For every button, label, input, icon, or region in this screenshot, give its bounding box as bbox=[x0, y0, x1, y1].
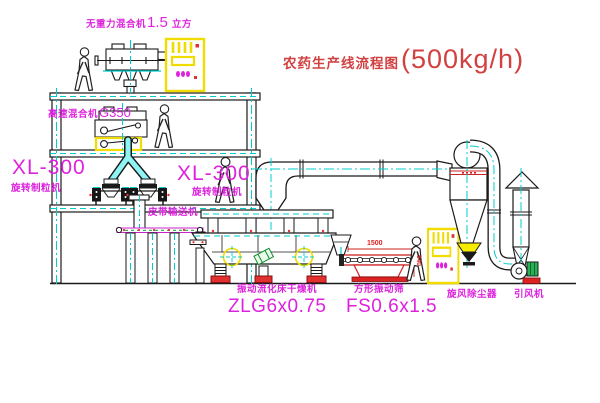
diagram-title: 农药生产线流程图 (500kg/h) bbox=[283, 44, 524, 75]
label-highspeed-mixer-value: G350 bbox=[99, 106, 131, 119]
person-figure-floor2 bbox=[155, 105, 173, 148]
label-highspeed-mixer: 高速混合机 G350 bbox=[48, 106, 131, 120]
label-granulator-left-model: XL-300 bbox=[12, 157, 86, 178]
control-cabinet-ground bbox=[428, 229, 458, 283]
pesticide-production-line-diagram: 农药生产线流程图 (500kg/h) 无重力混合机 1.5 立方 高速混合机 G… bbox=[0, 0, 600, 403]
label-cyclone: 旋风除尘器 bbox=[447, 290, 497, 300]
title-text: 农药生产线流程图 bbox=[283, 52, 399, 72]
label-dryer-model: ZLG6x0.75 bbox=[228, 297, 327, 316]
gravity-free-mixer-drawing bbox=[95, 40, 172, 93]
label-granulator-left-name: 旋转制粒机 bbox=[11, 184, 61, 194]
control-cabinet-roof bbox=[166, 39, 204, 91]
fluidbed-dryer-drawing bbox=[190, 210, 336, 283]
label-highspeed-mixer-prefix: 高速混合机 bbox=[48, 110, 98, 120]
label-granulator-right-name: 旋转制粒机 bbox=[192, 188, 242, 198]
discharge-chute bbox=[129, 195, 149, 231]
label-fan: 引风机 bbox=[514, 290, 544, 300]
dimension-screen-length: 1500 bbox=[367, 240, 383, 247]
label-gravity-free-mixer: 无重力混合机 1.5 立方 bbox=[86, 15, 192, 30]
label-belt-conveyor: 皮带输送机 bbox=[148, 208, 198, 218]
person-figure-roof bbox=[75, 48, 93, 91]
dimension-screen-height: 540 bbox=[415, 255, 422, 266]
label-dryer-name: 振动流化床干燥机 bbox=[237, 285, 317, 295]
label-top-mixer-value: 1.5 bbox=[147, 15, 168, 30]
label-screen-model: FS0.6x1.5 bbox=[346, 297, 437, 316]
label-screen-name: 方形振动筛 bbox=[354, 285, 404, 295]
granulator-left-drawing bbox=[89, 179, 132, 206]
granulator-right-drawing bbox=[126, 179, 169, 206]
label-top-mixer-prefix: 无重力混合机 bbox=[86, 20, 146, 30]
label-granulator-right-model: XL-300 bbox=[177, 163, 251, 184]
label-top-mixer-suffix: 立方 bbox=[172, 20, 192, 30]
title-capacity: (500kg/h) bbox=[401, 44, 524, 75]
exhaust-duct bbox=[252, 158, 455, 232]
